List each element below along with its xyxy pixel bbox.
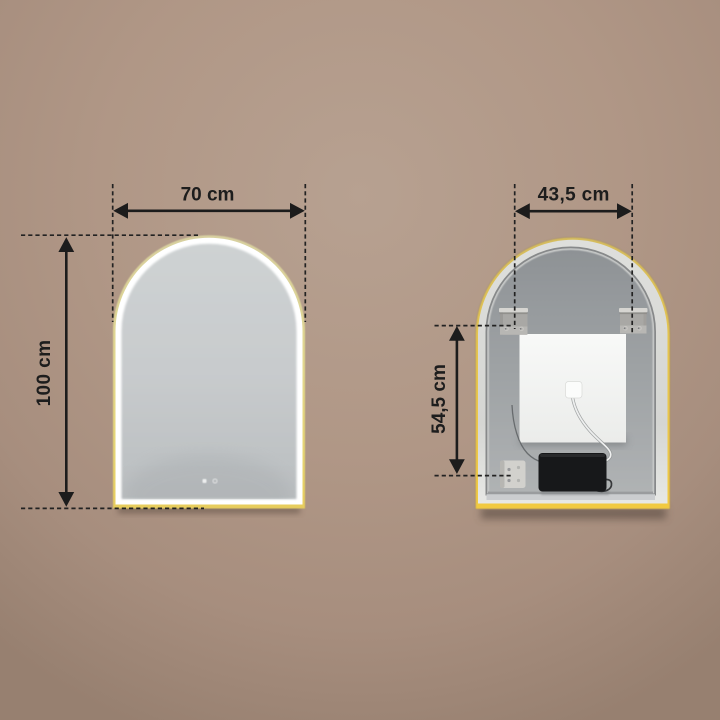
svg-text:54,5 cm: 54,5 cm [429, 364, 450, 434]
svg-text:43,5 cm: 43,5 cm [538, 185, 610, 206]
svg-text:70 cm: 70 cm [181, 185, 235, 206]
svg-text:100 cm: 100 cm [34, 340, 55, 407]
